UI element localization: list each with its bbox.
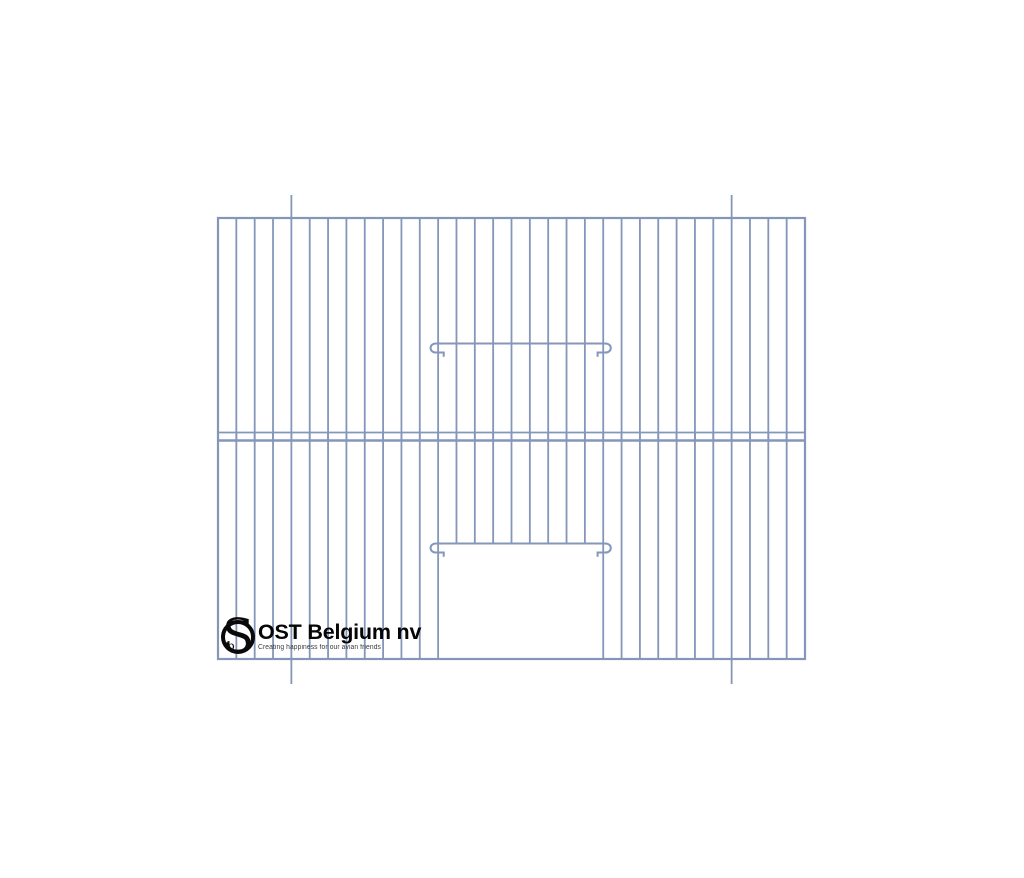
vertical-bars xyxy=(236,218,786,659)
monogram-small-letter: b xyxy=(227,640,235,652)
door-slide-upper xyxy=(431,343,611,356)
brand-text: OST Belgium nv Creating happiness for ou… xyxy=(258,620,421,652)
company-name: OST Belgium nv xyxy=(258,621,421,643)
brand-logo: S b OST Belgium nv Creating happiness fo… xyxy=(221,620,421,654)
company-tagline: Creating happiness for our avian friends xyxy=(258,644,415,652)
door-slide-lower xyxy=(431,543,611,556)
brand-monogram-circle: S b xyxy=(221,620,255,654)
product-image: S b OST Belgium nv Creating happiness fo… xyxy=(0,0,1024,878)
cage-front-drawing xyxy=(0,0,1024,878)
